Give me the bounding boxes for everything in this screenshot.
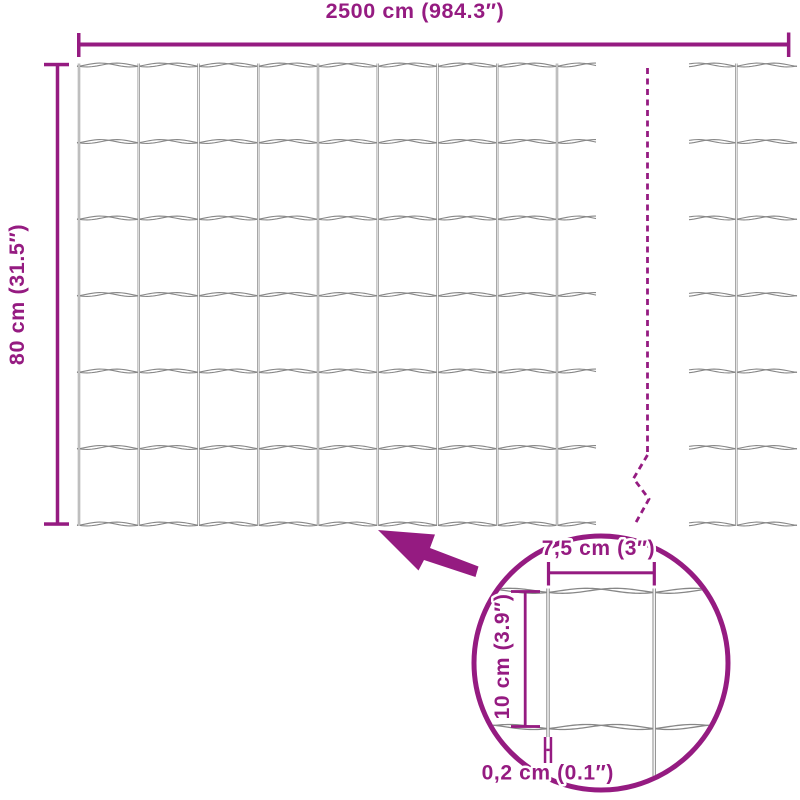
svg-text:2500 cm (984.3″): 2500 cm (984.3″) [326,0,505,23]
svg-text:80 cm (31.5″): 80 cm (31.5″) [5,224,29,365]
svg-text:7,5 cm (3″): 7,5 cm (3″) [542,537,656,560]
svg-text:10 cm (3.9″): 10 cm (3.9″) [491,594,514,720]
svg-text:0,2 cm (0.1″): 0,2 cm (0.1″) [482,762,614,785]
